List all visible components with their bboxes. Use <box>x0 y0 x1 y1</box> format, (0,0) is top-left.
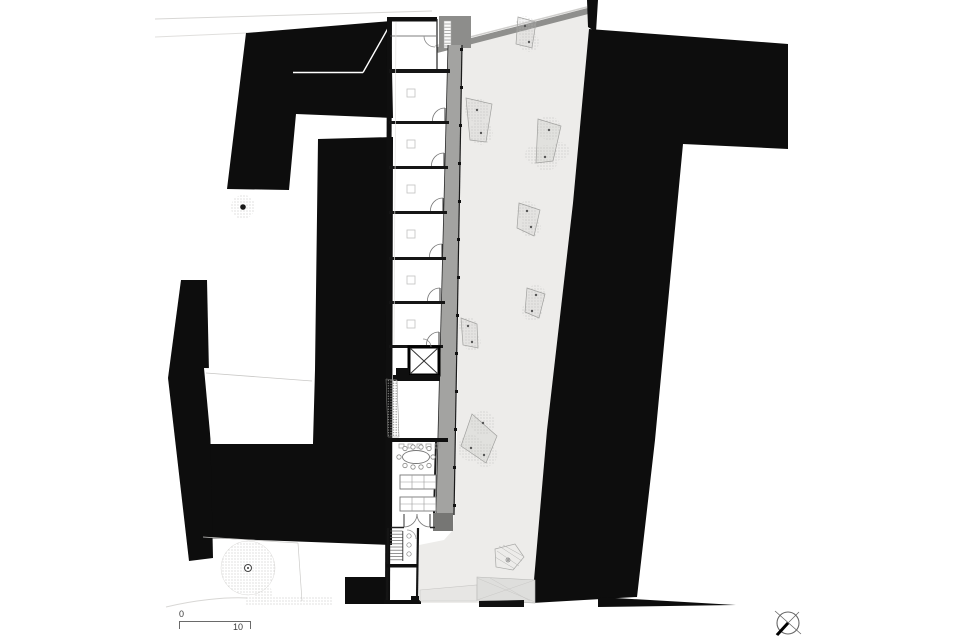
stair-flight <box>444 21 451 48</box>
chair <box>419 465 423 469</box>
column <box>460 86 463 89</box>
corridor-end <box>433 513 453 531</box>
door-arc <box>429 244 442 257</box>
street-line <box>155 33 247 37</box>
tree-trunk <box>483 454 485 456</box>
door-arc <box>431 153 444 166</box>
chair <box>427 446 431 450</box>
tree-trunk <box>531 310 533 312</box>
floor-plan-canvas <box>0 0 960 639</box>
column <box>457 276 460 279</box>
tree-trunk <box>247 567 249 569</box>
conference-table <box>403 451 430 464</box>
column <box>454 428 457 431</box>
tree-trunk <box>507 559 509 561</box>
tree-trunk <box>544 156 546 158</box>
fixture <box>407 534 411 538</box>
tree-trunk <box>476 109 478 111</box>
tree-trunk <box>471 341 473 343</box>
door-arc <box>430 198 443 211</box>
tree-outline <box>516 17 536 48</box>
partition-wall <box>389 257 446 260</box>
column <box>457 238 460 241</box>
chair <box>431 455 435 459</box>
column <box>455 352 458 355</box>
tree-trunk <box>524 25 526 27</box>
column <box>456 314 459 317</box>
column <box>458 162 461 165</box>
chair <box>427 463 431 467</box>
courtyard-notch <box>204 368 313 444</box>
fixture <box>407 552 411 556</box>
scale-ten-label: 10 <box>233 623 243 632</box>
scale-zero-label: 0 <box>179 610 184 619</box>
building-wall <box>411 596 419 602</box>
column <box>455 390 458 393</box>
tree-trunk <box>482 422 484 424</box>
building-wall <box>386 564 418 568</box>
site-wall <box>598 597 736 607</box>
door-arc <box>426 332 439 345</box>
door-arc <box>427 288 440 301</box>
hedge <box>386 379 399 437</box>
skylight-symbol <box>407 276 415 284</box>
building-mass <box>587 0 598 32</box>
building-mass <box>168 280 213 561</box>
tree-trunk <box>240 204 246 210</box>
column <box>459 124 462 127</box>
chair <box>403 446 407 450</box>
path-line <box>298 543 302 601</box>
building-mass <box>203 137 393 545</box>
partition-wall <box>389 211 447 214</box>
fixture <box>407 543 411 547</box>
building-wall <box>387 17 437 22</box>
tree-trunk <box>528 41 530 43</box>
partition-wall <box>389 166 448 169</box>
column <box>453 466 456 469</box>
door-arc <box>417 514 430 527</box>
building-wall <box>390 438 448 442</box>
north-arrow <box>758 599 818 639</box>
chair <box>411 465 415 469</box>
site-plan-page: { "scale_bar": { "zero": "0", "ten": "10… <box>0 0 960 639</box>
tree-trunk <box>467 325 469 327</box>
skylight-symbol <box>407 140 415 148</box>
tree-trunk <box>480 132 482 134</box>
door-arc <box>404 514 417 527</box>
skylight-symbol <box>407 89 415 97</box>
skylight-symbol <box>407 230 415 238</box>
skylight-symbol <box>407 185 415 193</box>
tree-canopy <box>254 584 272 602</box>
partition-wall <box>389 301 445 304</box>
column <box>453 504 456 507</box>
partition-wall <box>389 69 450 73</box>
chair <box>411 445 415 449</box>
skylight-symbol <box>407 320 415 328</box>
door-arc <box>432 108 445 121</box>
door-arc <box>407 530 416 539</box>
column <box>460 48 463 51</box>
tree-trunk <box>470 447 472 449</box>
site-wall <box>479 600 524 607</box>
column <box>458 200 461 203</box>
scale-bar: 0 10 <box>177 610 255 634</box>
door-arc <box>424 36 435 47</box>
tree-trunk <box>548 129 550 131</box>
partition-wall <box>389 121 449 124</box>
tree-trunk <box>535 294 537 296</box>
tree-trunk <box>526 210 528 212</box>
chair <box>403 463 407 467</box>
chair <box>397 455 401 459</box>
building-mass <box>345 577 386 604</box>
curb-line <box>166 598 247 607</box>
chair <box>419 445 423 449</box>
tree-trunk <box>530 226 532 228</box>
building-wall <box>396 368 409 376</box>
